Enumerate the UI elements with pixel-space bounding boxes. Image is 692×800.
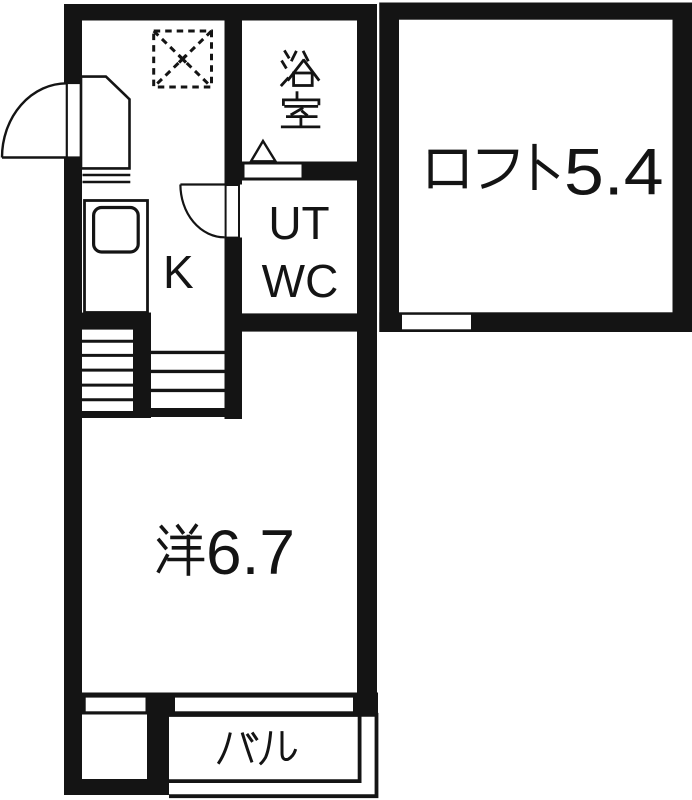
svg-text:UT: UT [268,197,329,249]
svg-text:5.4: 5.4 [564,134,664,208]
svg-text:6.7: 6.7 [206,518,295,588]
svg-text:K: K [163,246,194,298]
svg-text:WC: WC [262,255,339,307]
